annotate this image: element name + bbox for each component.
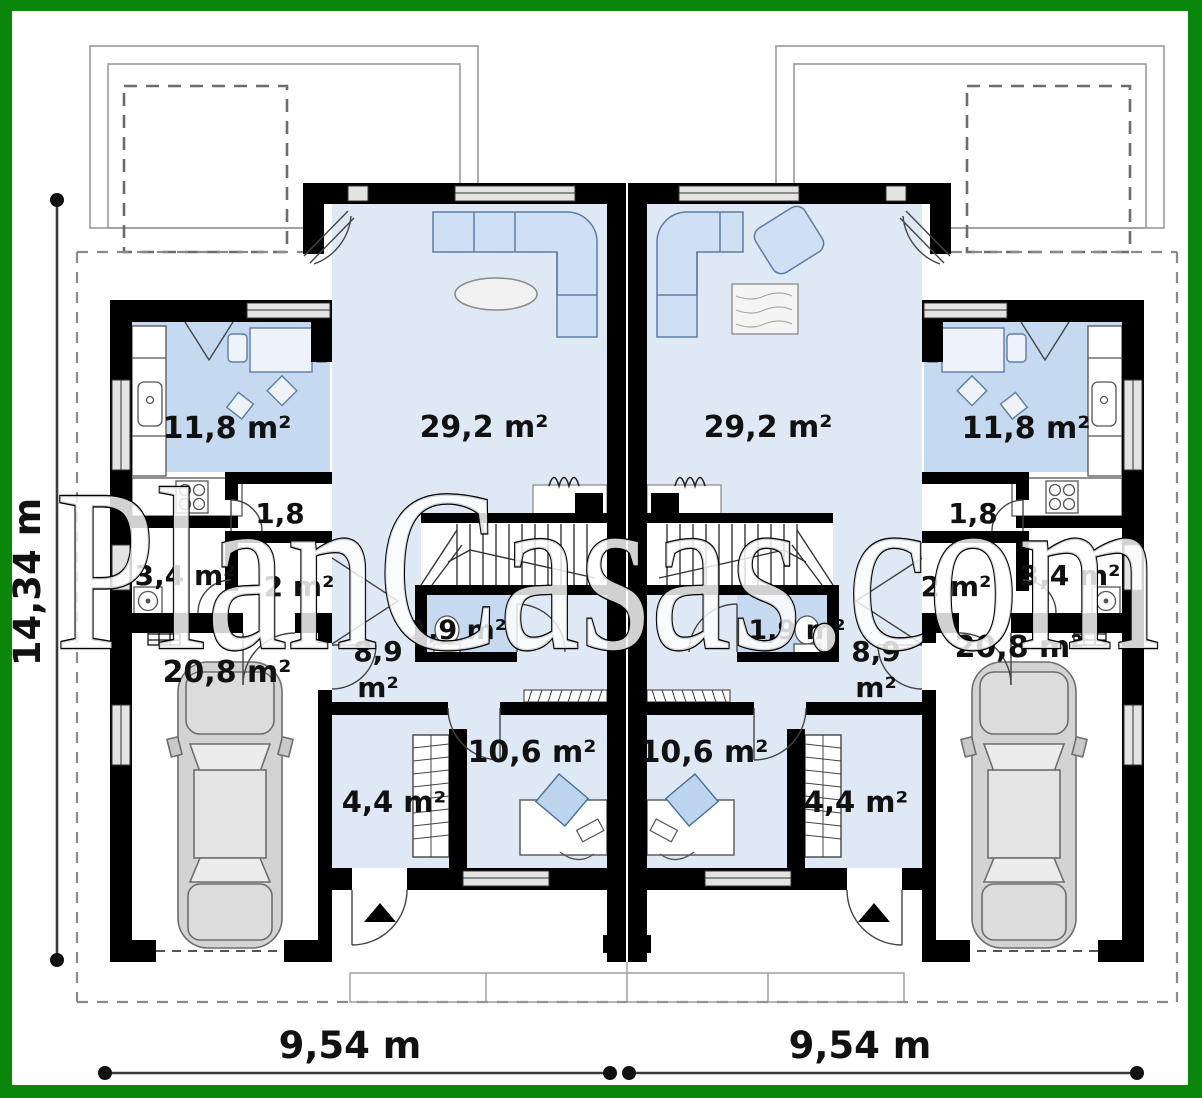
coffee-table-left [455, 278, 537, 310]
car [167, 662, 293, 948]
room-label-left-living: 29,2 m² [420, 410, 549, 445]
room-label-right-office: 10,6 m² [640, 735, 769, 770]
floor-plan-page: 11,8 m² 29,2 m² 1,8 3,4 m² 2 m² 1,9 m² 8… [0, 0, 1202, 1098]
room-label-left-office: 10,6 m² [468, 735, 597, 770]
dimension-label-height: 14,34 m [6, 498, 49, 666]
room-label-right-kitchen: 11,8 m² [962, 411, 1091, 446]
dimension-label-width-left: 9,54 m [279, 1024, 422, 1067]
dimension-label-width-right: 9,54 m [789, 1024, 932, 1067]
room-label-right-living: 29,2 m² [704, 410, 833, 445]
room-label-right-wardrobe: 4,4 m² [804, 785, 908, 819]
room-label-left-wardrobe: 4,4 m² [342, 785, 446, 819]
rug-right [732, 284, 798, 334]
floor-plan-svg: 11,8 m² 29,2 m² 1,8 3,4 m² 2 m² 1,9 m² 8… [0, 0, 1202, 1098]
watermark-text: PlanCasas.com [55, 442, 1160, 699]
room-label-left-kitchen: 11,8 m² [163, 411, 292, 446]
